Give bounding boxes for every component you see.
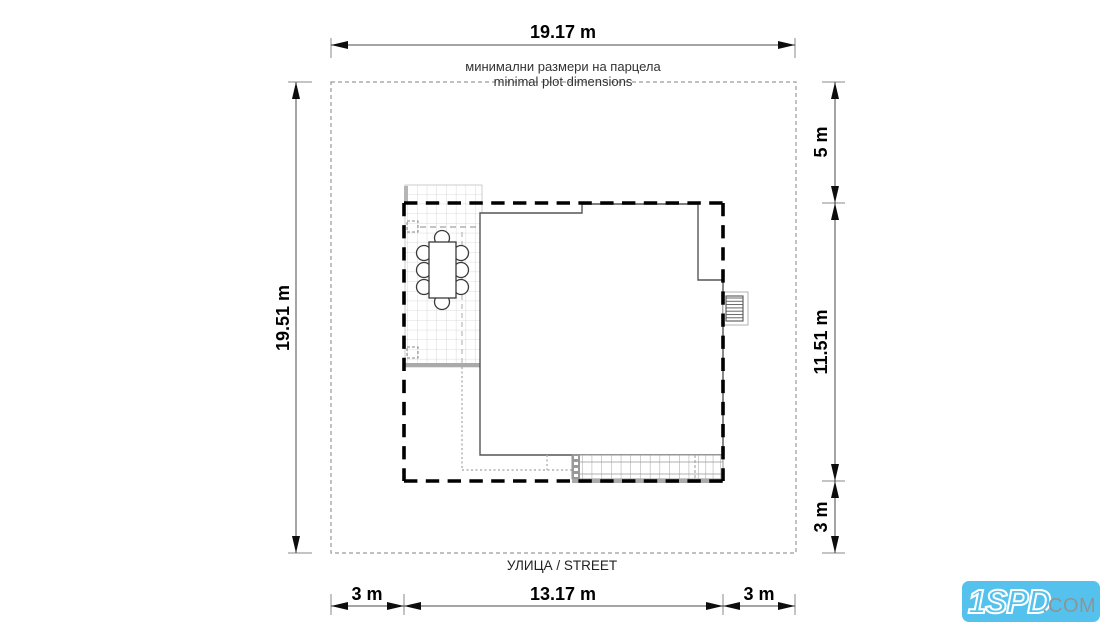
dim-arrow-down [292,536,300,553]
wall-unit-hatch [726,296,743,321]
dim-label-plot-height: 19.51 m [273,285,293,351]
dim-arrow-left [331,41,348,49]
dim-arrow-right [778,41,795,49]
dim-label-plot-width: 19.17 m [530,22,596,42]
plot-note-bulgarian: минимални размери на парцела [465,59,661,74]
dim-plot-height: 19.51 m [273,82,312,553]
site-plan-drawing: 19.17 m 19.51 m 5 m 11.51 m 3 m [0,0,1120,632]
plot-note-english: minimal plot dimensions [494,74,633,89]
dim-arrow [831,481,839,498]
dim-label-setback-bottom: 3 m [811,501,831,532]
dim-arrow [404,602,421,610]
dim-arrow [387,602,404,610]
dim-plot-width: 19.17 m [331,22,795,58]
logo-brand-text: 1SPD [968,583,1050,620]
dim-right-chain: 5 m 11.51 m 3 m [811,82,845,553]
dim-arrow [831,186,839,203]
dim-label-setback-top: 5 m [811,126,831,157]
deck [572,455,723,483]
dim-arrow [723,602,740,610]
dim-arrow-up [292,82,300,99]
dim-bottom-chain: 3 m 13.17 m 3 m [331,584,795,615]
logo-suffix-text: .COM [1042,595,1096,617]
terrace-wall-stub [404,186,408,203]
dim-arrow [831,82,839,99]
dim-arrow [778,602,795,610]
dim-label-setback-left: 3 m [351,584,382,604]
logo-1spd[interactable]: 1SPD .COM [962,581,1100,622]
deck-boards-right [695,455,723,479]
dim-label-building-depth: 11.51 m [811,309,831,374]
dim-arrow [831,464,839,481]
dining-table [429,242,456,298]
dim-label-building-width: 13.17 m [530,584,596,604]
building-outline [480,204,723,455]
dim-arrow [706,602,723,610]
dim-arrow [831,536,839,553]
terrace-bottom-edge [404,363,483,367]
deck-boards [580,455,695,479]
dim-arrow [331,602,348,610]
dim-label-setback-right: 3 m [743,584,774,604]
street-label: УЛИЦА / STREET [507,558,617,573]
dim-arrow [831,203,839,220]
wall-unit [723,292,748,325]
site-plan-page: 19.17 m 19.51 m 5 m 11.51 m 3 m [0,0,1120,632]
